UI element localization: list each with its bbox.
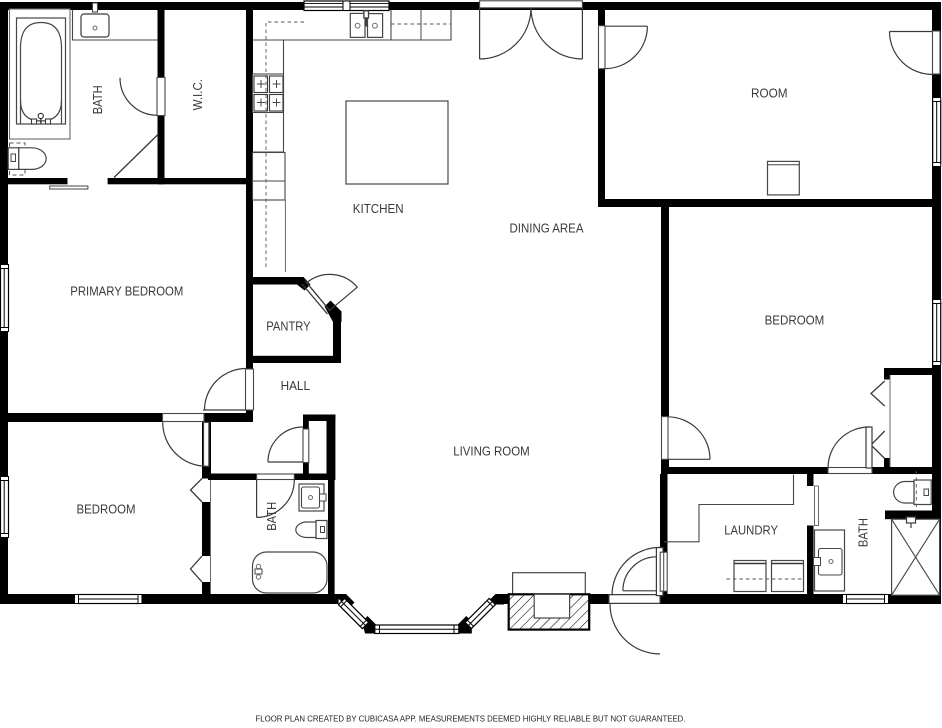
- svg-text:BATH: BATH: [856, 518, 871, 547]
- svg-text:FLOOR PLAN CREATED BY CUBICASA: FLOOR PLAN CREATED BY CUBICASA APP. MEAS…: [256, 713, 686, 723]
- svg-text:BEDROOM: BEDROOM: [765, 312, 825, 327]
- svg-text:HALL: HALL: [281, 378, 310, 393]
- svg-text:ROOM: ROOM: [751, 85, 788, 100]
- svg-text:DINING AREA: DINING AREA: [510, 220, 584, 235]
- svg-text:BATH: BATH: [90, 85, 105, 114]
- svg-text:LAUNDRY: LAUNDRY: [724, 523, 778, 538]
- svg-text:BATH: BATH: [264, 502, 279, 531]
- svg-text:W.I.C.: W.I.C.: [190, 79, 205, 110]
- svg-text:PRIMARY BEDROOM: PRIMARY BEDROOM: [70, 284, 183, 299]
- svg-text:LIVING ROOM: LIVING ROOM: [453, 444, 530, 459]
- svg-text:KITCHEN: KITCHEN: [353, 201, 404, 216]
- svg-text:BEDROOM: BEDROOM: [77, 502, 136, 517]
- svg-text:PANTRY: PANTRY: [266, 318, 310, 333]
